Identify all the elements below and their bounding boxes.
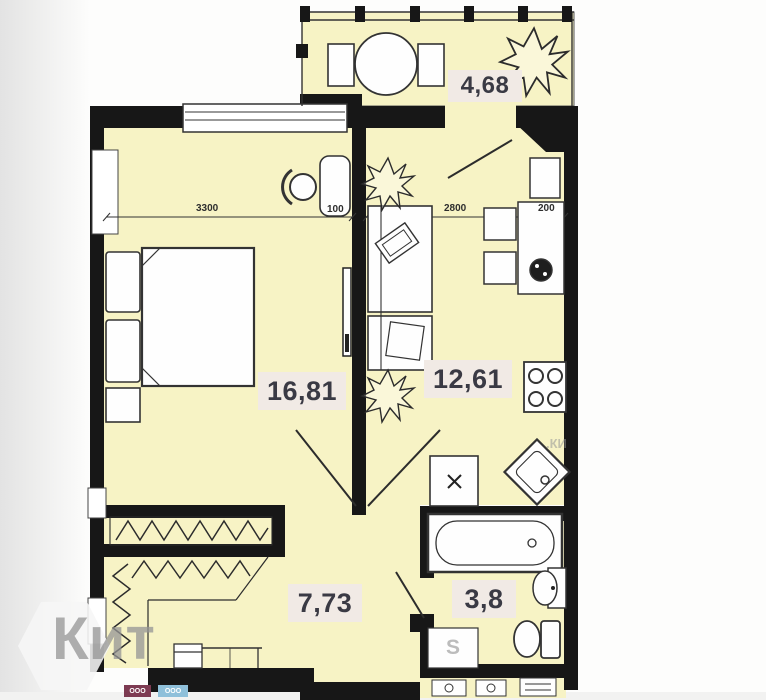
balcony-chair [328, 44, 354, 86]
area-label-bathroom: 3,8 [452, 580, 516, 618]
radiator [520, 678, 556, 696]
area-label-hallway: 7,73 [288, 584, 362, 622]
chair [484, 208, 516, 240]
nightstand [106, 388, 140, 422]
bathtub [428, 514, 562, 572]
dimension-label: 100 [327, 204, 344, 215]
corridor-fixtures [432, 678, 556, 696]
tv [343, 268, 351, 356]
sofa-pillow [386, 322, 424, 360]
chair [484, 252, 516, 284]
wall-niche [88, 488, 106, 518]
area-label-living-room: 16,81 [258, 372, 346, 410]
desk-chair [290, 174, 316, 200]
bathroom-sink [533, 568, 566, 608]
storage-label: S [430, 632, 476, 664]
wall-pier [92, 150, 118, 234]
balcony-chair [418, 44, 444, 86]
corner-watermark: .КИ [546, 436, 567, 451]
counter-top-box [530, 158, 560, 198]
agency-watermark: Кит [52, 606, 155, 672]
dimension-label: 2800 [444, 203, 466, 214]
area-label-kitchen: 12,61 [424, 360, 512, 398]
floor-plan-page: 4,68 16,81 12,61 7,73 3,8 3300 100 2800 … [0, 0, 766, 700]
stove [524, 362, 566, 412]
pillow [106, 252, 140, 312]
floor-plan-drawing [0, 0, 766, 700]
badge-right: ООО [158, 685, 188, 697]
area-label-balcony: 4,68 [448, 70, 522, 102]
badge-left: ООО [124, 685, 151, 697]
living-room-window [183, 104, 347, 132]
dimension-label: 200 [538, 203, 555, 214]
dimension-label: 3300 [196, 203, 218, 214]
sofa [368, 206, 432, 370]
round-sink-icon [530, 259, 552, 281]
round-table [355, 33, 417, 95]
washing-machine [430, 456, 478, 506]
pillow [106, 320, 140, 382]
